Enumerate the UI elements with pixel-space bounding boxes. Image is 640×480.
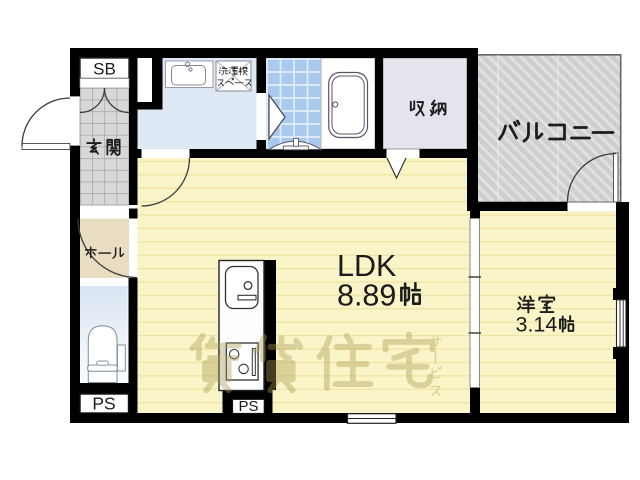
svg-text:PS: PS [92, 394, 115, 414]
svg-text:PS: PS [238, 398, 258, 415]
svg-text:SB: SB [93, 60, 116, 79]
svg-text:8.89: 8.89 [337, 279, 396, 313]
svg-text:3.14: 3.14 [516, 313, 558, 337]
